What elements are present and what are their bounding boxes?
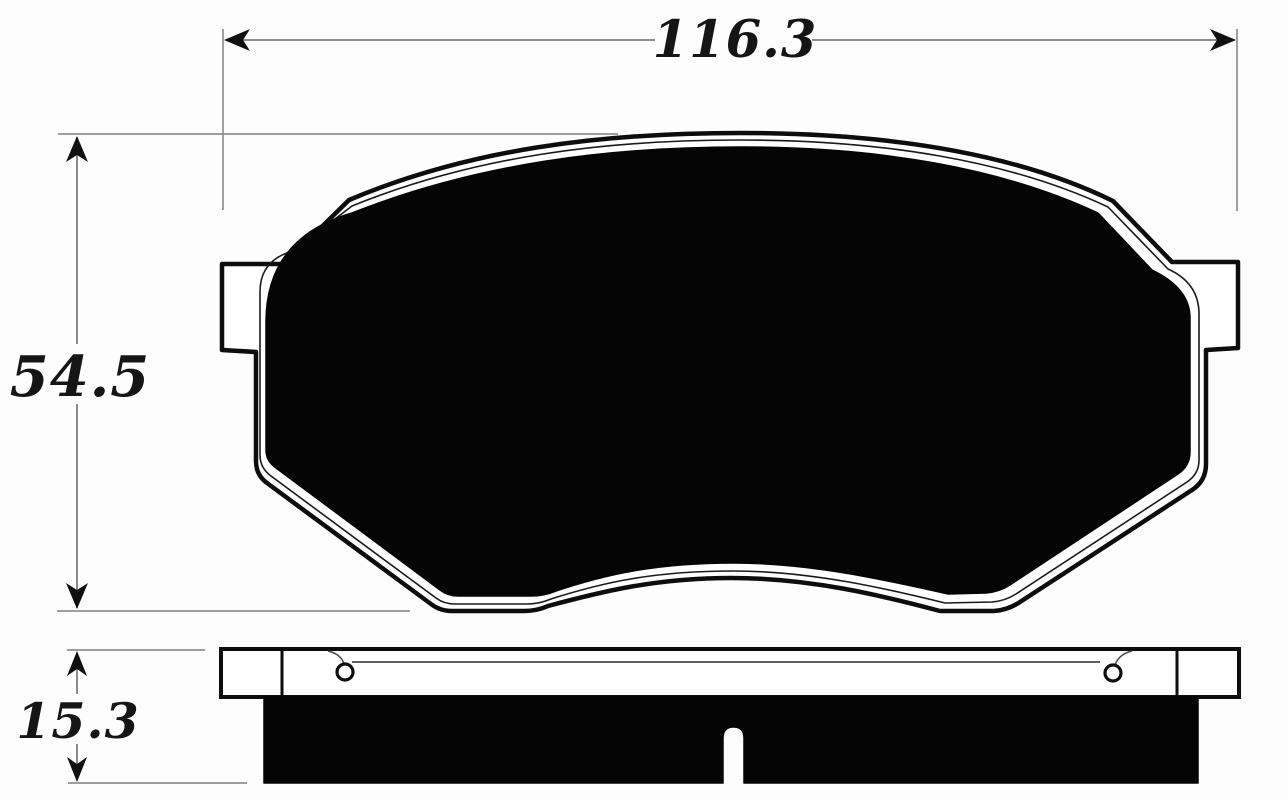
side-view	[221, 649, 1239, 783]
front-view	[222, 133, 1238, 611]
left-rivet-hole	[337, 664, 353, 680]
dimension-thickness: 15.3	[16, 650, 247, 783]
height-dim-label: 54.5	[10, 344, 150, 410]
width-dim-label: 116.3	[653, 10, 818, 70]
drawing-canvas: 116.3 54.5 15.3	[0, 0, 1288, 800]
friction-material-side	[264, 697, 1198, 783]
friction-material-front	[266, 147, 1190, 596]
right-rivet-hole	[1105, 665, 1121, 681]
backing-plate-side	[221, 649, 1239, 697]
brake-pad-technical-drawing: 116.3 54.5 15.3	[0, 0, 1288, 800]
thickness-dim-label: 15.3	[16, 692, 139, 750]
